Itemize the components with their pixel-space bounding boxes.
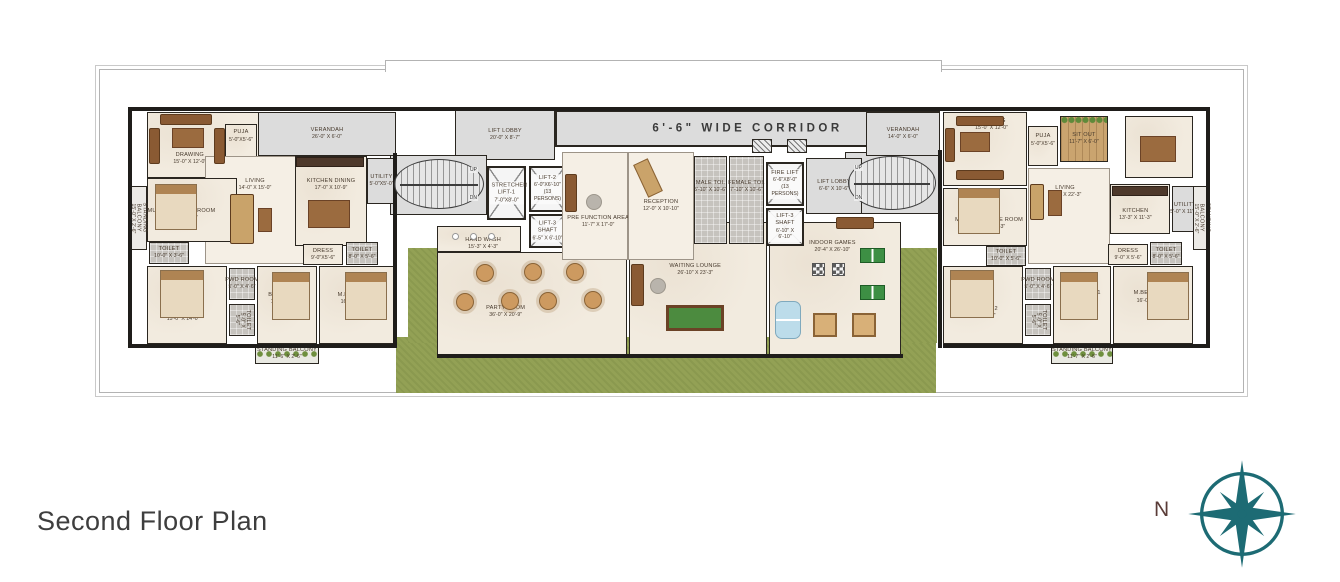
sofa-icon: [836, 217, 874, 229]
foosball-table-icon: [860, 285, 885, 300]
sink-icon: [488, 233, 495, 240]
planter-row-icon: [1061, 116, 1107, 124]
sofa-icon: [160, 114, 212, 125]
foosball-table-icon: [860, 248, 885, 263]
party-table-icon: [456, 293, 474, 311]
dining-table-icon: [1140, 136, 1176, 162]
vent-shaft-icon: [752, 139, 772, 153]
page-title: Second Floor Plan: [37, 506, 268, 537]
wall: [437, 354, 903, 358]
compass-rose: N: [1146, 458, 1316, 570]
bed-icon: [1147, 272, 1189, 320]
stair-up-label: UP: [469, 167, 478, 173]
party-table-icon: [476, 264, 494, 282]
sofa-icon: [956, 170, 1004, 180]
kitchen-platform-icon: [1112, 186, 1168, 196]
staircase-right: UP DN: [848, 156, 936, 210]
party-table-icon: [501, 292, 519, 310]
bed-icon: [160, 270, 204, 318]
vent-shaft-icon: [787, 139, 807, 153]
chess-table-icon: [812, 263, 825, 276]
wall: [128, 107, 132, 348]
air-hockey-table-icon: [775, 301, 801, 339]
coffee-table-icon: [960, 132, 990, 152]
coffee-table-icon: [172, 128, 204, 148]
bed-icon: [345, 272, 387, 320]
sofa-icon: [230, 194, 254, 244]
staircase-left: UP DN: [394, 159, 484, 209]
wall: [128, 107, 1210, 111]
sofa-icon: [214, 128, 225, 164]
pool-table-icon: [666, 305, 724, 331]
bed-icon: [155, 184, 197, 230]
wall: [938, 150, 942, 348]
party-table-icon: [566, 263, 584, 281]
stair-down-label: DN: [469, 195, 478, 201]
carrom-table-icon: [852, 313, 876, 337]
sofa-icon: [149, 128, 160, 164]
wall: [943, 344, 1210, 348]
dining-table-icon: [308, 200, 350, 228]
rug-icon: [650, 278, 666, 294]
sink-icon: [470, 233, 477, 240]
sofa-icon: [1030, 184, 1044, 220]
reception-desk-icon: [633, 158, 663, 197]
floor-plan-page: PARTY ROOM36'-0" X 20'-9"WAITING LOUNGE2…: [0, 0, 1340, 582]
stair-up-label: UP: [854, 165, 863, 171]
carrom-table-icon: [813, 313, 837, 337]
sink-icon: [452, 233, 459, 240]
compass-star-icon: [1186, 458, 1298, 570]
kitchen-platform-icon: [296, 157, 364, 167]
wall: [128, 344, 396, 348]
party-table-icon: [584, 291, 602, 309]
sofa-icon: [956, 116, 1004, 126]
sofa-icon: [565, 174, 577, 212]
sofa-icon: [631, 264, 644, 306]
compass-north-label: N: [1154, 498, 1169, 522]
bed-icon: [950, 270, 994, 318]
wall: [1206, 107, 1210, 348]
coffee-table-icon: [258, 208, 272, 232]
bed-icon: [958, 188, 1000, 234]
coffee-table-icon: [1048, 190, 1062, 216]
sofa-icon: [945, 128, 955, 162]
rug-icon: [586, 194, 602, 210]
stair-down-label: DN: [854, 195, 863, 201]
party-table-icon: [524, 263, 542, 281]
decor-layer: UP DN UP DN: [0, 0, 1340, 582]
bed-icon: [1060, 272, 1098, 320]
party-table-icon: [539, 292, 557, 310]
chess-table-icon: [832, 263, 845, 276]
bed-icon: [272, 272, 310, 320]
